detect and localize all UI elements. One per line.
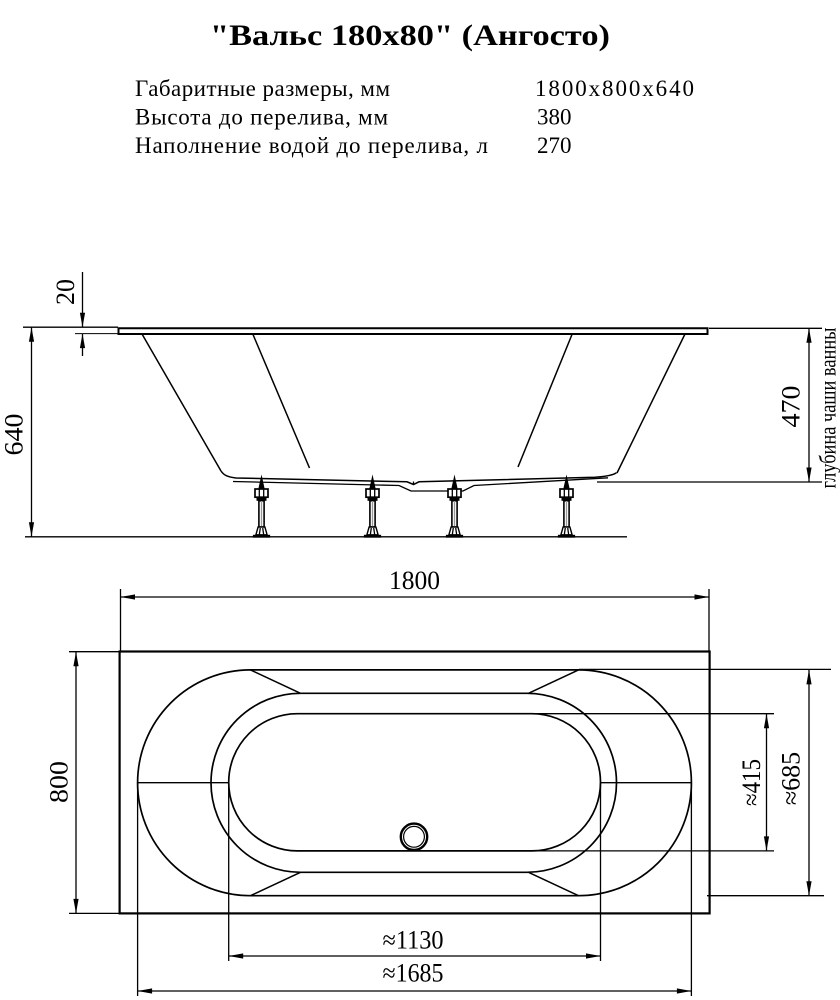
- svg-text:≈1130: ≈1130: [383, 925, 444, 954]
- svg-text:≈1685: ≈1685: [383, 959, 444, 988]
- svg-text:Габаритные размеры, мм: Габаритные размеры, мм: [135, 76, 390, 101]
- svg-text:20: 20: [51, 279, 80, 305]
- svg-text:≈685: ≈685: [777, 752, 806, 805]
- svg-text:глубина чаши ванны: глубина чаши ванны: [816, 328, 840, 489]
- svg-text:800: 800: [45, 761, 74, 803]
- svg-text:"Вальс 180х80" (Ангосто): "Вальс 180х80" (Ангосто): [210, 19, 610, 52]
- svg-text:380: 380: [537, 105, 572, 130]
- svg-text:≈415: ≈415: [737, 759, 766, 806]
- svg-text:1800: 1800: [389, 566, 440, 595]
- svg-text:270: 270: [537, 133, 572, 158]
- svg-text:Высота до перелива, мм: Высота до перелива, мм: [135, 105, 388, 130]
- svg-text:640: 640: [0, 414, 29, 456]
- svg-text:1800х800х640: 1800х800х640: [535, 76, 694, 101]
- svg-text:470: 470: [777, 386, 806, 428]
- svg-text:Наполнение водой до перелива,: Наполнение водой до перелива, л: [135, 133, 488, 158]
